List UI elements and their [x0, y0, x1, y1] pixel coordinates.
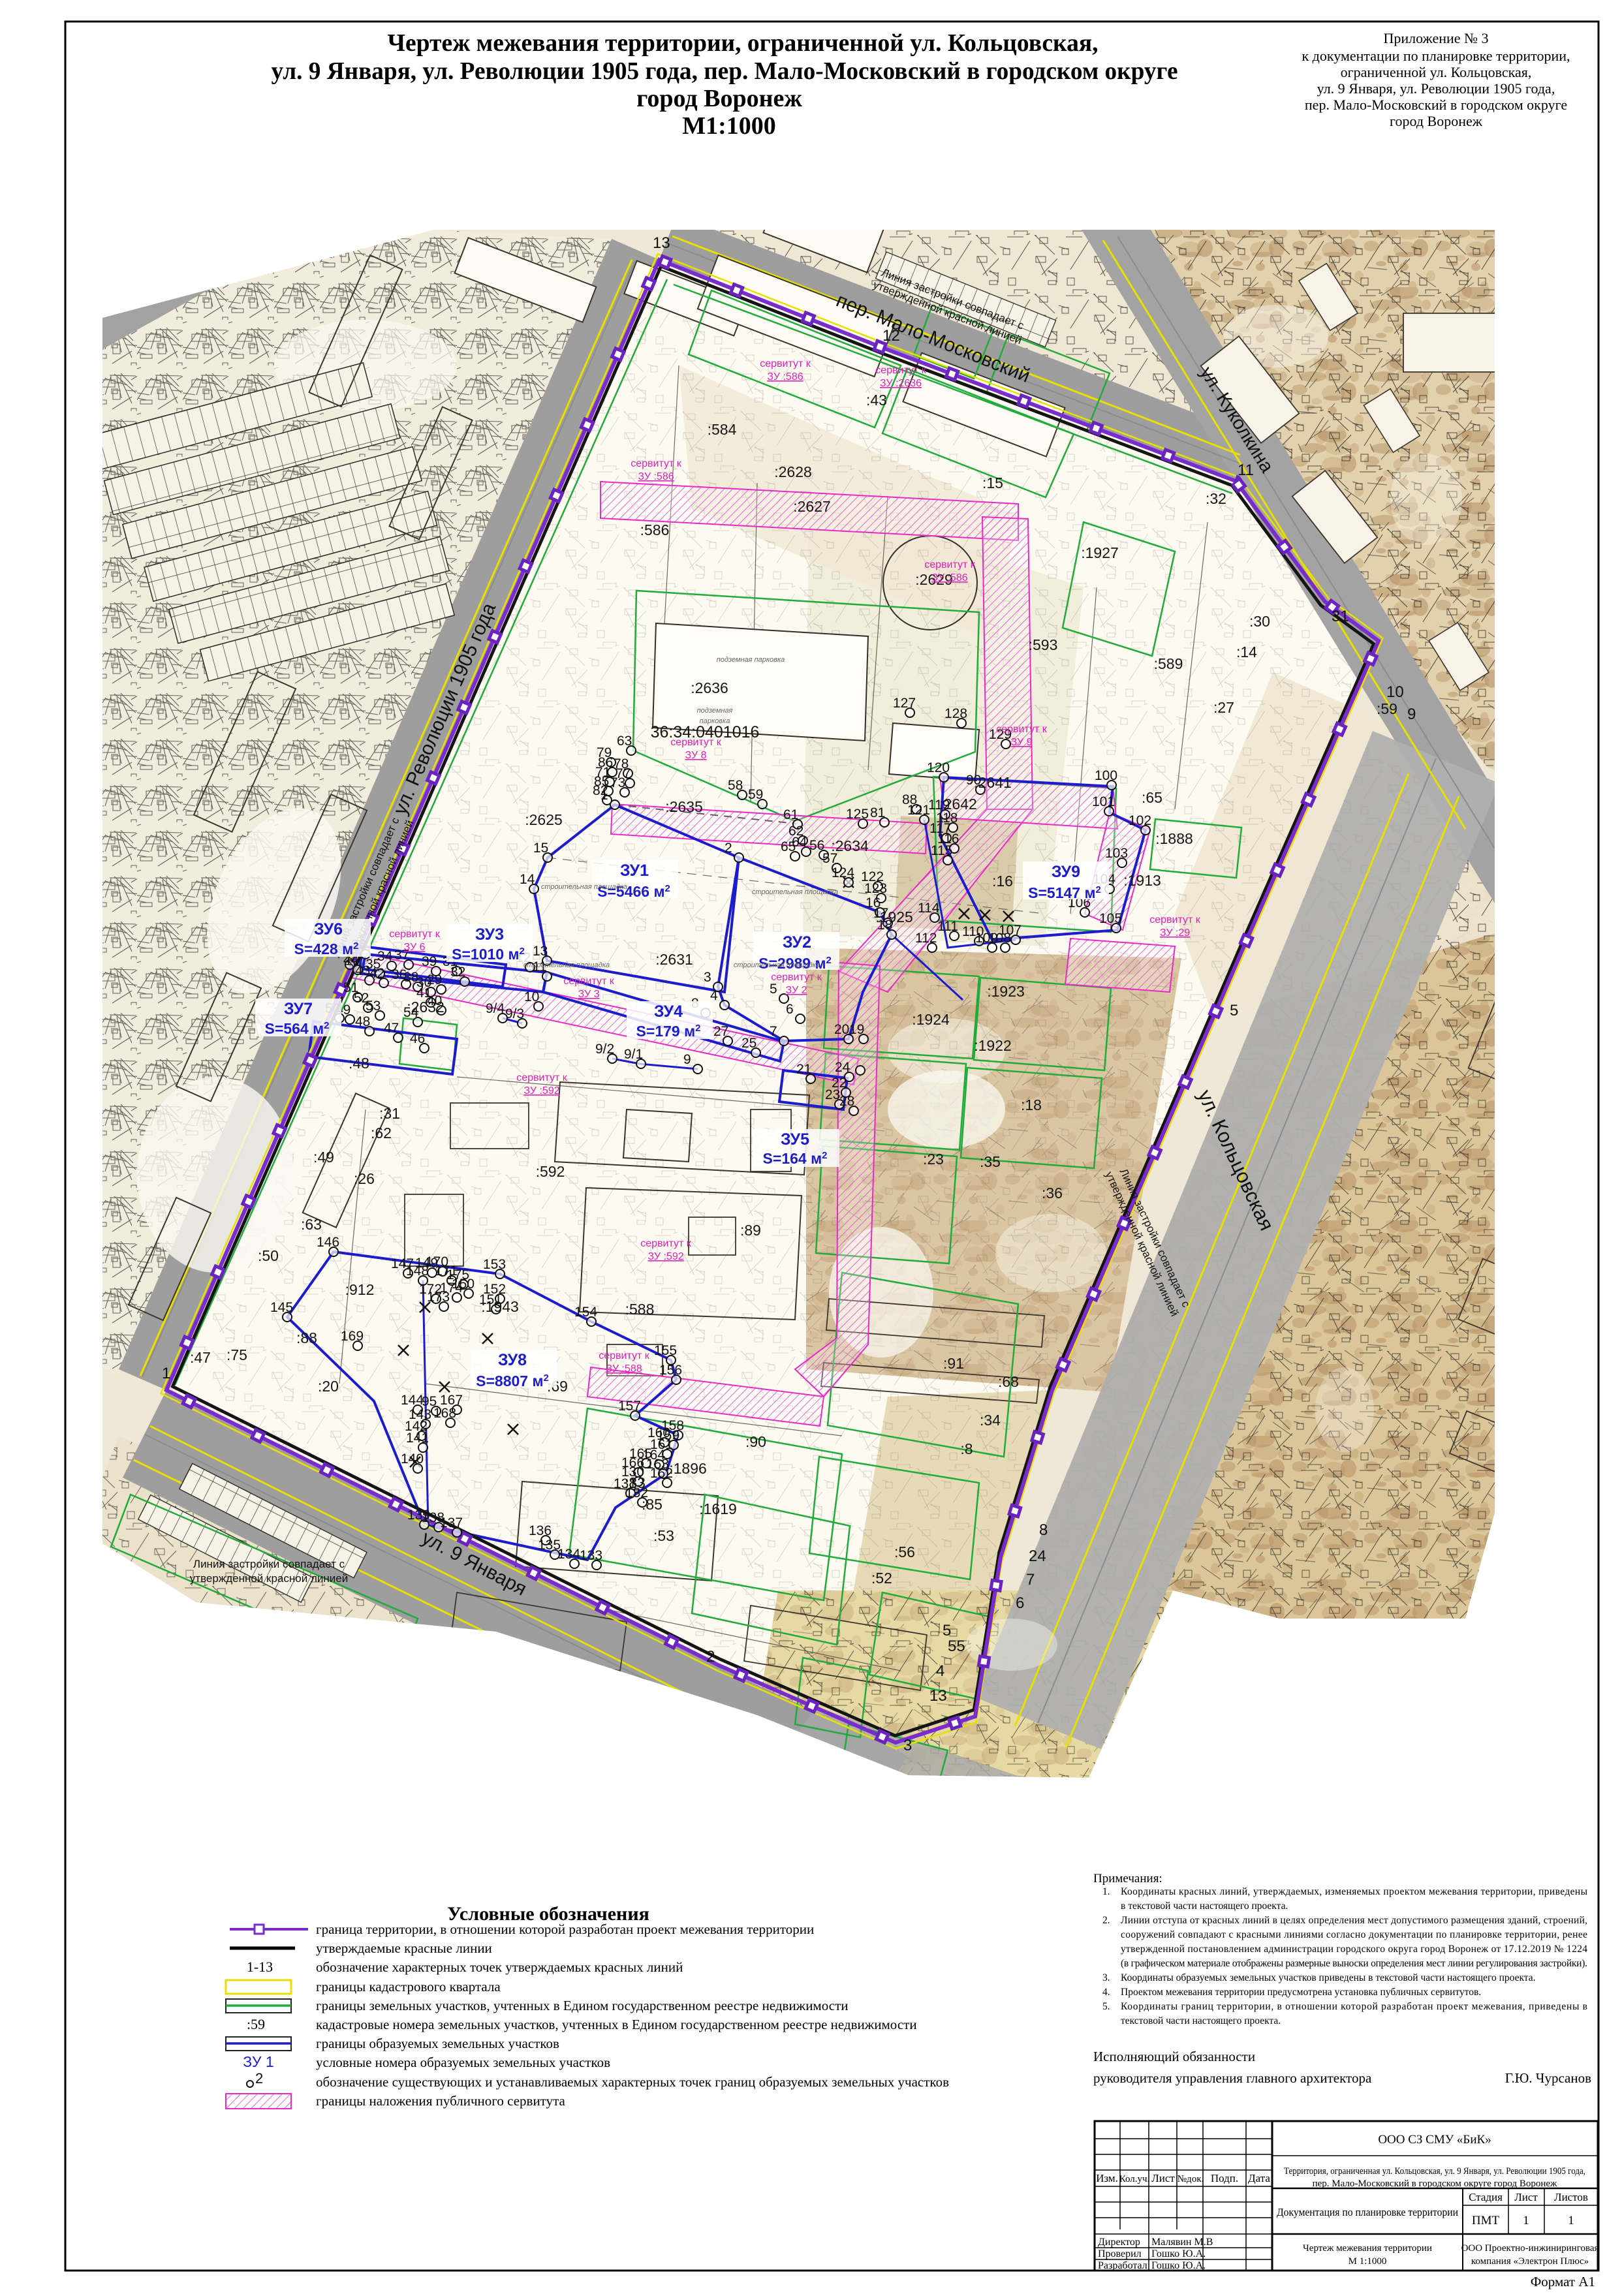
svg-text:S=179 м2: S=179 м2 — [636, 1023, 701, 1040]
svg-text:ЗУ :29: ЗУ :29 — [1160, 927, 1190, 939]
svg-text::912: :912 — [345, 1281, 375, 1298]
svg-text::2641: :2641 — [974, 774, 1012, 791]
svg-text:Изм.: Изм. — [1096, 2172, 1118, 2184]
svg-text:Территория, ограниченная ул. К: Территория, ограниченная ул. Кольцовская… — [1284, 2166, 1585, 2177]
svg-text:ЗУ4: ЗУ4 — [654, 1002, 683, 1021]
svg-text::53: :53 — [653, 1527, 674, 1544]
svg-text:15: 15 — [533, 841, 548, 856]
svg-text:6: 6 — [1016, 1594, 1024, 1612]
svg-text:ЗУ 9: ЗУ 9 — [1011, 737, 1033, 748]
svg-text::23: :23 — [923, 1151, 944, 1168]
svg-text::2631: :2631 — [655, 951, 693, 968]
svg-text:Разработал: Разработал — [1098, 2260, 1147, 2271]
svg-text::43: :43 — [866, 392, 887, 409]
svg-text:135: 135 — [538, 1538, 561, 1553]
svg-text::59: :59 — [1377, 700, 1397, 717]
svg-text::2632: :2632 — [407, 999, 444, 1016]
svg-text::1619: :1619 — [699, 1500, 737, 1517]
svg-text:65: 65 — [781, 839, 796, 854]
svg-text:5.: 5. — [1102, 2001, 1110, 2012]
svg-text::2628: :2628 — [774, 463, 812, 480]
svg-text:123: 123 — [864, 881, 887, 896]
svg-text:157: 157 — [618, 1399, 641, 1414]
svg-text:153: 153 — [483, 1257, 506, 1272]
svg-text:ЗУ 1: ЗУ 1 — [243, 2053, 273, 2070]
svg-text:127: 127 — [893, 696, 916, 711]
svg-text::47: :47 — [190, 1349, 211, 1366]
svg-text:сервитут к: сервитут к — [631, 458, 682, 469]
svg-text:Листов: Листов — [1554, 2191, 1588, 2203]
svg-text::1922: :1922 — [974, 1037, 1012, 1054]
svg-text:13: 13 — [533, 944, 548, 959]
svg-text::62: :62 — [371, 1125, 392, 1141]
svg-text:ЗУ2: ЗУ2 — [783, 933, 811, 952]
svg-text:Г.Ю. Чурсанов: Г.Ю. Чурсанов — [1505, 2070, 1591, 2086]
svg-text:5: 5 — [943, 1622, 951, 1639]
svg-text::20: :20 — [318, 1378, 339, 1395]
svg-text:ЗУ :592: ЗУ :592 — [523, 1085, 559, 1096]
svg-text:Малявин М.В: Малявин М.В — [1151, 2237, 1213, 2248]
svg-text::75: :75 — [226, 1346, 247, 1363]
svg-text:границы земельных участков, уч: границы земельных участков, учтенных в Е… — [316, 1998, 848, 2013]
svg-text::18: :18 — [1021, 1096, 1042, 1113]
svg-text:Гошко Ю.А.: Гошко Ю.А. — [1151, 2248, 1206, 2259]
svg-text::588: :588 — [625, 1301, 655, 1318]
svg-text:границы кадастрового квартала: границы кадастрового квартала — [316, 1979, 501, 1994]
svg-text:ПМТ: ПМТ — [1472, 2214, 1500, 2227]
svg-text::85: :85 — [642, 1496, 663, 1513]
svg-text::16: :16 — [992, 873, 1013, 890]
svg-text:4: 4 — [710, 988, 718, 1003]
svg-text:3: 3 — [903, 1737, 912, 1754]
svg-text:156: 156 — [659, 1363, 682, 1378]
svg-text:9/3: 9/3 — [505, 1006, 524, 1021]
svg-text:2: 2 — [706, 1648, 715, 1666]
svg-text:пер. Мало-Московский в городск: пер. Мало-Московский в городском округе — [1305, 97, 1567, 113]
svg-text:4: 4 — [936, 1662, 944, 1680]
svg-text::89: :89 — [740, 1222, 761, 1239]
svg-text:S=1010 м2: S=1010 м2 — [452, 946, 525, 963]
svg-text::2636: :2636 — [691, 679, 728, 696]
svg-text:сервитут к: сервитут к — [640, 1238, 692, 1249]
svg-text:101: 101 — [1092, 794, 1115, 809]
svg-text::1896: :1896 — [669, 1460, 707, 1477]
svg-text:S=564 м2: S=564 м2 — [265, 1020, 330, 1037]
svg-text:S=428 м2: S=428 м2 — [294, 940, 359, 957]
svg-text:сервитут к: сервитут к — [563, 976, 615, 987]
svg-text:47: 47 — [384, 1021, 399, 1036]
svg-text:136: 136 — [529, 1523, 552, 1538]
svg-text:обозначение существующих и уст: обозначение существующих и устанавливаем… — [316, 2074, 949, 2090]
svg-text:23: 23 — [825, 1087, 840, 1102]
svg-text::35: :35 — [980, 1153, 1001, 1170]
svg-text:ЗУ :592: ЗУ :592 — [647, 1251, 683, 1262]
svg-text:143: 143 — [409, 1407, 431, 1422]
svg-text:11: 11 — [1238, 461, 1254, 479]
svg-text:граница территории, в отношени: граница территории, в отношении которой … — [316, 1921, 814, 1937]
svg-text:Чертеж межевания территории, о: Чертеж межевания территории, ограниченно… — [388, 29, 1099, 57]
svg-text:139: 139 — [407, 1508, 430, 1523]
svg-text:134: 134 — [557, 1547, 580, 1562]
svg-text:парковка: парковка — [700, 717, 730, 725]
svg-text:ЗУ1: ЗУ1 — [620, 861, 649, 880]
svg-text:169: 169 — [341, 1329, 364, 1344]
svg-text::56: :56 — [894, 1544, 915, 1560]
svg-text:48: 48 — [355, 1014, 370, 1029]
svg-text:ЗУ 8: ЗУ 8 — [685, 750, 707, 761]
svg-text::2642: :2642 — [939, 796, 977, 813]
svg-text:ЗУ :586: ЗУ :586 — [767, 371, 803, 382]
svg-text::1923: :1923 — [987, 983, 1025, 1000]
svg-text:Чертеж межевания территории: Чертеж межевания территории — [1303, 2243, 1432, 2254]
svg-text:Координаты красных линий, утве: Координаты красных линий, утверждаемых, … — [1121, 1886, 1588, 1897]
svg-text::1913: :1913 — [1123, 872, 1161, 889]
svg-text:114: 114 — [918, 901, 940, 916]
svg-text:100: 100 — [1095, 768, 1117, 783]
svg-text:М 1:1000: М 1:1000 — [1349, 2256, 1387, 2267]
svg-text:сервитут к: сервитут к — [996, 724, 1048, 735]
svg-text:46: 46 — [410, 1031, 425, 1046]
svg-text:руководителя управления главно: руководителя управления главного архитек… — [1093, 2070, 1372, 2086]
svg-text:Приложение № 3: Приложение № 3 — [1383, 30, 1488, 46]
svg-text::8: :8 — [960, 1440, 973, 1457]
svg-text:43: 43 — [355, 963, 370, 978]
svg-text:сервитут к: сервитут к — [875, 365, 927, 376]
svg-text::91: :91 — [943, 1355, 964, 1372]
svg-text:21: 21 — [796, 1062, 811, 1077]
svg-text:24: 24 — [1029, 1547, 1046, 1565]
svg-text:S=8807 м2: S=8807 м2 — [476, 1373, 549, 1389]
svg-text:13: 13 — [929, 1687, 947, 1705]
svg-text::2634: :2634 — [831, 837, 869, 854]
svg-text:условные номера образуемых зем: условные номера образуемых земельных уча… — [316, 2055, 610, 2070]
svg-text::1925: :1925 — [875, 908, 913, 925]
svg-text:текстовой части настоящего про: текстовой части настоящего проекта. — [1121, 2015, 1281, 2026]
svg-text:9: 9 — [1407, 706, 1416, 723]
svg-text:102: 102 — [1129, 813, 1151, 828]
svg-text:1: 1 — [1523, 2214, 1529, 2227]
svg-text:Линии отступа от красных линий: Линии отступа от красных линий в целях о… — [1121, 1915, 1587, 1926]
svg-text:81: 81 — [870, 805, 885, 820]
svg-text:ЗУ7: ЗУ7 — [284, 1000, 313, 1018]
svg-text:145: 145 — [270, 1300, 293, 1315]
svg-text:1: 1 — [162, 1365, 170, 1382]
svg-text:9/1: 9/1 — [624, 1047, 643, 1062]
svg-text:10: 10 — [1386, 683, 1404, 701]
svg-text:144: 144 — [401, 1393, 424, 1408]
svg-text:ограниченной ул. Кольцовская,: ограниченной ул. Кольцовская, — [1341, 64, 1532, 80]
svg-text::27: :27 — [1213, 699, 1234, 716]
svg-text:73: 73 — [610, 775, 625, 790]
svg-text:сервитут к: сервитут к — [924, 559, 976, 570]
svg-text::2625: :2625 — [525, 811, 563, 828]
svg-text::592: :592 — [536, 1163, 565, 1180]
svg-text:ЗУ8: ЗУ8 — [498, 1351, 527, 1369]
svg-text:Подп.: Подп. — [1211, 2172, 1238, 2184]
svg-text:Примечания:: Примечания: — [1093, 1872, 1162, 1885]
svg-text:28: 28 — [839, 1094, 854, 1109]
svg-text:55: 55 — [948, 1637, 965, 1655]
svg-text:20: 20 — [834, 1022, 849, 1037]
svg-text:кадастровые номера земельных у: кадастровые номера земельных участков, у… — [316, 2017, 917, 2032]
svg-text:Формат А1: Формат А1 — [1531, 2274, 1595, 2289]
svg-text:53: 53 — [366, 999, 381, 1014]
svg-text:24: 24 — [835, 1060, 850, 1075]
svg-text::65: :65 — [1142, 789, 1162, 806]
svg-text:5: 5 — [770, 982, 777, 997]
svg-text:14: 14 — [520, 872, 535, 887]
svg-text:ООО Проектно-инжиниринговая: ООО Проектно-инжиниринговая — [1461, 2243, 1599, 2254]
svg-text::63: :63 — [301, 1216, 322, 1233]
svg-text:121: 121 — [907, 803, 930, 818]
svg-text:27: 27 — [713, 1024, 728, 1039]
svg-text:ул. 9 Января, ул. Революции 19: ул. 9 Января, ул. Революции 1905 года, п… — [272, 57, 1178, 85]
svg-text:компания «Электрон Плюс»: компания «Электрон Плюс» — [1471, 2256, 1589, 2267]
svg-text::586: :586 — [640, 521, 670, 538]
svg-text:сервитут к: сервитут к — [670, 737, 722, 748]
svg-text:сервитут к: сервитут к — [599, 1350, 650, 1361]
svg-text:32: 32 — [450, 965, 465, 980]
svg-text:7: 7 — [1026, 1571, 1035, 1589]
svg-text:1.: 1. — [1102, 1886, 1110, 1897]
svg-text::2635: :2635 — [665, 798, 703, 815]
svg-text:3.: 3. — [1102, 1972, 1110, 1983]
svg-text::59: :59 — [247, 2016, 265, 2032]
svg-text:сервитут к: сервитут к — [1149, 914, 1201, 925]
svg-text:111: 111 — [937, 919, 958, 934]
svg-text:подземная парковка: подземная парковка — [717, 656, 785, 664]
svg-text:2: 2 — [725, 841, 732, 856]
svg-text:(в графическом материале отобр: (в графическом материале отображены разм… — [1121, 1958, 1587, 1969]
svg-text:сервитут к: сервитут к — [516, 1072, 568, 1083]
svg-text:Гошко Ю.А.: Гошко Ю.А. — [1151, 2260, 1206, 2271]
svg-text:133: 133 — [580, 1548, 602, 1563]
svg-text:2: 2 — [255, 2070, 263, 2087]
svg-text:утверждаемые красные линии: утверждаемые красные линии — [316, 1940, 492, 1956]
svg-text:19: 19 — [849, 1022, 864, 1037]
svg-text:ЗУ 2: ЗУ 2 — [786, 985, 807, 996]
svg-text:границы образуемых земельных у: границы образуемых земельных участков — [316, 2036, 559, 2051]
svg-text::15: :15 — [982, 474, 1003, 491]
svg-text::26: :26 — [354, 1170, 375, 1187]
svg-text::31: :31 — [379, 1105, 400, 1122]
svg-text:ЗУ 3: ЗУ 3 — [578, 989, 600, 1000]
svg-text:146: 146 — [317, 1235, 339, 1250]
svg-text:№док.: №док. — [1178, 2174, 1204, 2184]
svg-text:Документация по планировке тер: Документация по планировке территории — [1277, 2206, 1458, 2218]
svg-text:1: 1 — [600, 788, 608, 803]
svg-text:112: 112 — [915, 931, 937, 946]
svg-text:7: 7 — [770, 1024, 777, 1039]
svg-text:к документации по планировке т: к документации по планировке территории, — [1302, 48, 1570, 64]
svg-text:154: 154 — [574, 1305, 597, 1320]
svg-text:128: 128 — [944, 706, 967, 721]
svg-text:6: 6 — [786, 1002, 794, 1017]
svg-text:Стадия: Стадия — [1469, 2191, 1503, 2203]
svg-text:ЗУ :586: ЗУ :586 — [638, 471, 674, 482]
svg-text:ул. 9 Января, ул. Революции 19: ул. 9 Января, ул. Революции 1905 года, — [1317, 80, 1555, 97]
svg-text:140: 140 — [401, 1451, 424, 1466]
svg-text::68: :68 — [998, 1373, 1019, 1390]
svg-text:ЗУ :2636: ЗУ :2636 — [880, 378, 922, 389]
svg-text:ЗУ9: ЗУ9 — [1052, 863, 1080, 881]
svg-text::1927: :1927 — [1081, 544, 1119, 561]
svg-text::32: :32 — [1206, 490, 1226, 507]
svg-text:4.: 4. — [1102, 1987, 1110, 1998]
svg-text:Директор: Директор — [1098, 2237, 1140, 2248]
svg-text::34: :34 — [980, 1412, 1001, 1429]
svg-text:124: 124 — [832, 865, 854, 880]
svg-text:39: 39 — [422, 954, 437, 969]
svg-text:Кол.уч.: Кол.уч. — [1119, 2174, 1150, 2184]
svg-text:границы наложения публичного с: границы наложения публичного сервитута — [316, 2093, 566, 2109]
svg-text:Проектом межевания территории: Проектом межевания территории предусмотр… — [1121, 1987, 1481, 1998]
svg-text::14: :14 — [1236, 644, 1257, 660]
svg-text:сооружений совпадают с красным: сооружений совпадают с красными линиями … — [1121, 1929, 1587, 1940]
svg-text:59: 59 — [748, 787, 763, 802]
svg-text::30: :30 — [1249, 613, 1270, 630]
svg-text:167: 167 — [440, 1393, 463, 1408]
svg-text:ЗУ :586: ЗУ :586 — [931, 572, 967, 583]
svg-text:утвержденной постановлением ад: утвержденной постановлением администраци… — [1121, 1944, 1587, 1955]
svg-text:Исполняющий обязанности: Исполняющий обязанности — [1093, 2049, 1255, 2064]
svg-text:утвержденной красной линией: утвержденной красной линией — [190, 1572, 348, 1585]
svg-text:S=164 м2: S=164 м2 — [763, 1150, 828, 1167]
svg-text:9/4: 9/4 — [486, 1001, 505, 1016]
svg-text:строительная площадка: строительная площадка — [734, 961, 820, 969]
svg-text:120: 120 — [927, 760, 950, 775]
svg-text:9/2: 9/2 — [595, 1042, 614, 1057]
svg-text:сервитут к: сервитут к — [771, 972, 822, 983]
svg-text:3: 3 — [704, 970, 711, 985]
svg-text::83: :83 — [625, 1474, 646, 1491]
svg-text:сервитут к: сервитут к — [389, 929, 441, 940]
svg-text::50: :50 — [258, 1247, 279, 1264]
svg-text:2.: 2. — [1102, 1915, 1110, 1926]
svg-text:М1:1000: М1:1000 — [682, 112, 776, 140]
svg-text:115: 115 — [931, 843, 952, 858]
svg-text:Лист: Лист — [1514, 2191, 1538, 2203]
svg-text::36: :36 — [1042, 1185, 1063, 1202]
svg-text:63: 63 — [617, 734, 632, 749]
svg-text:строительная площадка: строительная площадка — [752, 888, 838, 896]
svg-text:107: 107 — [999, 923, 1022, 938]
svg-text:103: 103 — [1105, 846, 1128, 861]
svg-text:город Воронеж: город Воронеж — [636, 85, 802, 112]
svg-text:Линия застройки совпадает с: Линия застройки совпадает с — [193, 1558, 345, 1570]
svg-text:61: 61 — [783, 807, 798, 822]
svg-text:город Воронеж: город Воронеж — [1390, 113, 1483, 129]
svg-text:Дата: Дата — [1248, 2172, 1270, 2184]
svg-text:13: 13 — [653, 234, 670, 252]
svg-text:42: 42 — [369, 966, 384, 981]
svg-text:ЗУ 6: ЗУ 6 — [404, 942, 426, 953]
svg-text:10: 10 — [524, 989, 539, 1004]
svg-text:168: 168 — [433, 1406, 456, 1421]
svg-text:ЗУ6: ЗУ6 — [314, 920, 343, 939]
svg-text:58: 58 — [728, 778, 743, 793]
svg-text:сервитут к: сервитут к — [760, 358, 811, 369]
svg-text:1-13: 1-13 — [247, 1959, 273, 1975]
svg-text:Координаты границ территории,: Координаты границ территории, в отношени… — [1121, 2001, 1587, 2012]
svg-text:ЗУ :588: ЗУ :588 — [606, 1363, 642, 1374]
svg-text:36: 36 — [392, 967, 407, 982]
svg-text:5: 5 — [1230, 1002, 1238, 1019]
svg-text::1888: :1888 — [1155, 830, 1193, 847]
svg-text:1: 1 — [1568, 2214, 1574, 2227]
svg-text:Координаты образуемых земельны: Координаты образуемых земельных участков… — [1121, 1972, 1536, 1983]
svg-text:в текстовой части настоящего п: в текстовой части настоящего проекта. — [1121, 1900, 1288, 1912]
svg-text:Лист: Лист — [1151, 2172, 1175, 2184]
svg-text:Проверил: Проверил — [1098, 2248, 1142, 2259]
svg-text::584: :584 — [708, 421, 737, 438]
svg-text::589: :589 — [1154, 655, 1183, 672]
svg-text:подземная: подземная — [697, 707, 733, 715]
svg-text:173: 173 — [427, 1290, 450, 1305]
svg-text::1943: :1943 — [481, 1298, 519, 1315]
svg-text:S=5147 м2: S=5147 м2 — [1028, 884, 1101, 901]
svg-text::593: :593 — [1029, 636, 1058, 653]
svg-text:обозначение характерных точек: обозначение характерных точек утверждаем… — [316, 1959, 683, 1975]
svg-text::1924: :1924 — [912, 1011, 950, 1028]
svg-text:9: 9 — [683, 1052, 691, 1067]
svg-text:155: 155 — [654, 1343, 677, 1358]
svg-text:строительная площадка: строительная площадка — [523, 961, 610, 969]
svg-text::88: :88 — [296, 1329, 317, 1346]
svg-text:8: 8 — [1039, 1521, 1048, 1539]
svg-text:31: 31 — [1332, 608, 1349, 625]
svg-text:105: 105 — [1099, 911, 1122, 926]
svg-text:пер. Мало-Московский в городск: пер. Мало-Московский в городском округе … — [1313, 2179, 1557, 2189]
svg-text::2627: :2627 — [793, 498, 831, 515]
svg-text::48: :48 — [349, 1055, 369, 1072]
svg-text:ООО СЗ СМУ «БиК»: ООО СЗ СМУ «БиК» — [1378, 2133, 1491, 2147]
svg-text::90: :90 — [745, 1433, 766, 1450]
svg-text::52: :52 — [871, 1570, 892, 1587]
svg-text::49: :49 — [313, 1149, 334, 1166]
svg-text:25: 25 — [741, 1036, 756, 1051]
svg-text:строительная площадка: строительная площадка — [541, 883, 627, 891]
svg-text:125: 125 — [846, 807, 869, 822]
svg-text:ЗУ3: ЗУ3 — [475, 925, 504, 944]
svg-text:ЗУ5: ЗУ5 — [781, 1130, 809, 1149]
